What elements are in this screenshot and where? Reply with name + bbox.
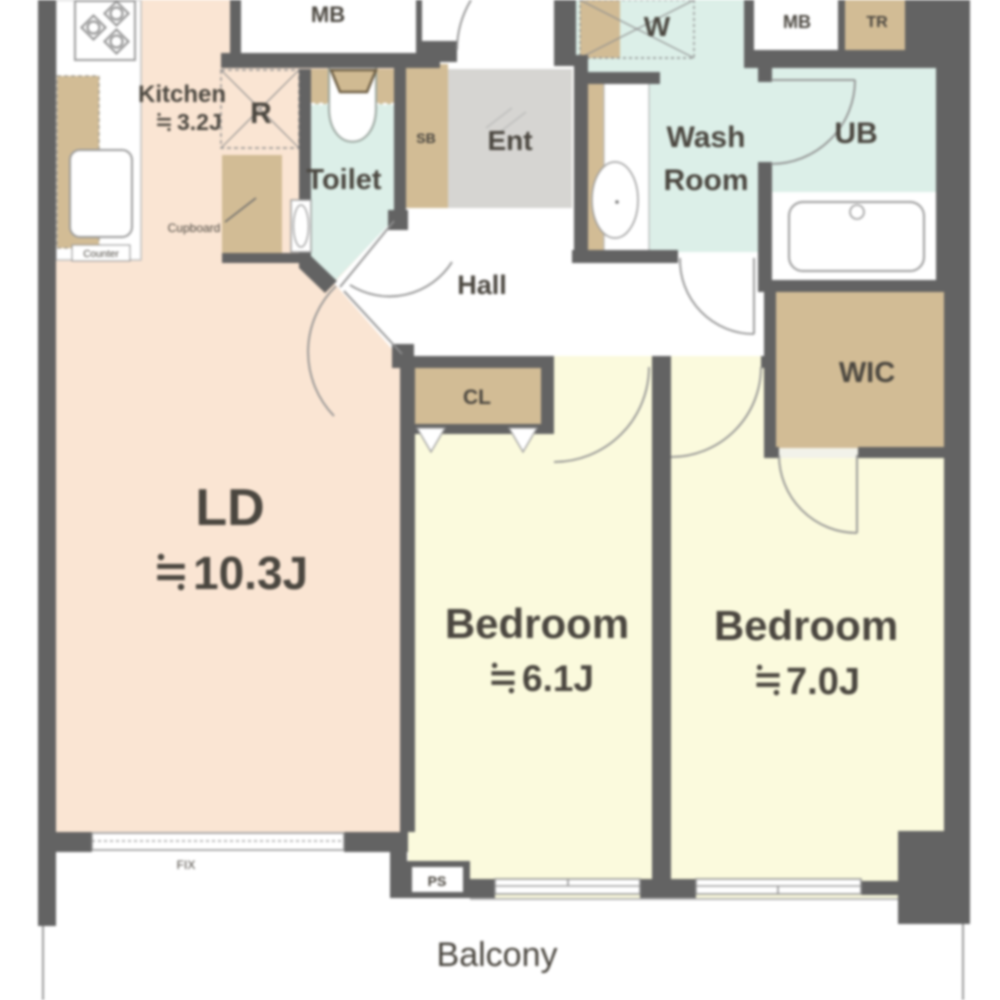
svg-text:3.2J: 3.2J bbox=[177, 109, 222, 135]
svg-text:Balcony: Balcony bbox=[437, 936, 558, 974]
svg-text:Bedroom: Bedroom bbox=[714, 602, 898, 649]
svg-text:SB: SB bbox=[416, 130, 435, 146]
svg-text:Kitchen: Kitchen bbox=[138, 81, 226, 108]
svg-text:7.0J: 7.0J bbox=[786, 661, 860, 703]
svg-text:10.3J: 10.3J bbox=[193, 547, 308, 599]
svg-text:Ent: Ent bbox=[487, 125, 532, 156]
svg-text:FIX: FIX bbox=[177, 858, 196, 872]
svg-text:Wash: Wash bbox=[667, 121, 746, 154]
svg-text:MB: MB bbox=[311, 2, 345, 27]
svg-text:6.1J: 6.1J bbox=[522, 658, 594, 699]
svg-text:CL: CL bbox=[463, 386, 491, 409]
svg-text:Hall: Hall bbox=[457, 270, 507, 300]
svg-text:LD: LD bbox=[195, 479, 264, 537]
svg-text:Bedroom: Bedroom bbox=[445, 600, 629, 647]
svg-text:MB: MB bbox=[783, 12, 811, 32]
svg-text:UB: UB bbox=[834, 117, 877, 150]
svg-text:Cupboard: Cupboard bbox=[168, 221, 221, 235]
svg-text:Room: Room bbox=[664, 164, 749, 197]
svg-text:WIC: WIC bbox=[839, 357, 895, 389]
svg-text:W: W bbox=[644, 11, 671, 42]
svg-text:Counter: Counter bbox=[83, 249, 119, 260]
svg-text:R: R bbox=[250, 97, 272, 130]
svg-text:Toilet: Toilet bbox=[306, 164, 382, 196]
svg-text:TR: TR bbox=[866, 14, 888, 31]
svg-text:PS: PS bbox=[428, 873, 447, 889]
